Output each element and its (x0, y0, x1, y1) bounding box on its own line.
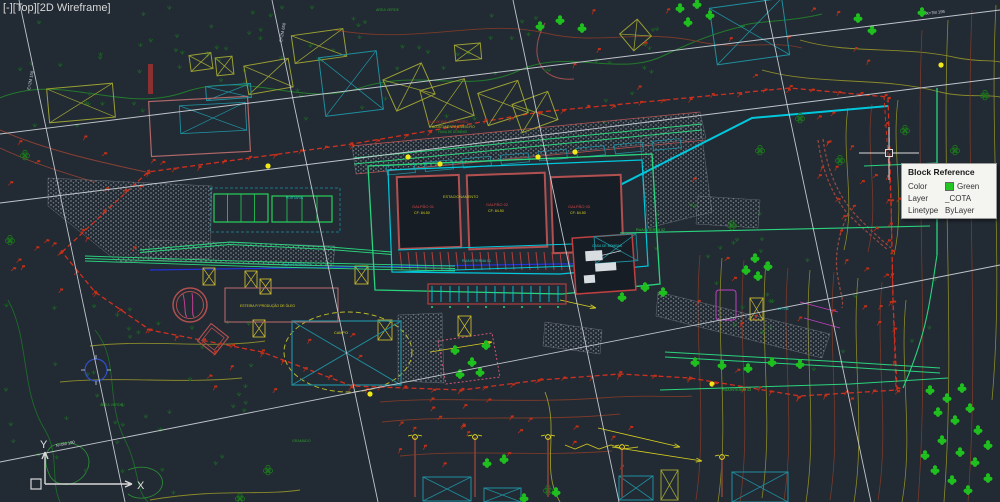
plant-sprig-icon (357, 35, 361, 39)
plant-sprig-icon (138, 69, 142, 73)
contour-line (95, 330, 148, 502)
survey-marker (768, 390, 773, 395)
structure-xbox-yellow (245, 271, 257, 288)
plant-sprig-icon (88, 91, 92, 95)
tree-outline-icon (264, 465, 273, 475)
survey-marker (574, 425, 579, 430)
plant-sprig-icon (741, 305, 745, 309)
light-dot (572, 149, 577, 154)
building-xbox-olive (189, 53, 213, 72)
tree-icon (744, 363, 753, 373)
plant-sprig-icon (296, 88, 300, 92)
contour-line (800, 40, 1000, 62)
plant-sprig-icon (356, 23, 360, 27)
plant-sprig-icon (714, 281, 718, 285)
drawing-label: RUA INTERNA 03 (722, 388, 751, 392)
survey-marker (728, 37, 733, 42)
tree-icon (964, 485, 973, 495)
plant-sprig-icon (760, 237, 764, 241)
survey-marker (849, 145, 854, 150)
equipment-block (584, 275, 596, 284)
plant-sprig-icon (132, 101, 136, 105)
tree-icon (948, 475, 957, 485)
tank-detail (183, 293, 194, 317)
survey-marker (349, 386, 354, 391)
survey-marker (831, 112, 836, 117)
grid-coordinate-label: E=2M 650 (278, 22, 287, 42)
tree-icon (868, 25, 877, 35)
ucs-x-label: X (137, 480, 145, 492)
plant-sprig-icon (520, 19, 524, 23)
plant-sprig-icon (53, 362, 57, 366)
plant-sprig-icon (58, 63, 62, 67)
plant-sprig-icon (209, 24, 213, 28)
building-xbox-teal (732, 472, 788, 502)
plant-sprig-icon (215, 45, 219, 49)
plant-sprig-icon (426, 50, 430, 54)
tree-icon (934, 407, 943, 417)
drawing-label: ESTACIONAMENTO (443, 195, 478, 199)
survey-marker (817, 115, 822, 120)
survey-marker (591, 9, 596, 14)
tank-outer (173, 288, 207, 322)
treatment-plant (572, 234, 640, 294)
tree-icon (943, 393, 952, 403)
tooltip-row-color: Color Green (908, 180, 991, 192)
tooltip-title: Block Reference (908, 167, 991, 177)
pipe-curve (903, 255, 937, 388)
tree-icon (984, 440, 993, 450)
plant-sprig-icon (75, 123, 79, 127)
plant-sprig-icon (841, 349, 845, 353)
survey-marker (572, 63, 577, 68)
plant-sprig-icon (98, 55, 102, 59)
survey-marker (886, 239, 891, 244)
survey-marker (20, 265, 25, 270)
plant-sprig-icon (115, 440, 119, 444)
survey-marker (725, 257, 730, 262)
survey-marker (172, 168, 177, 173)
tree-icon (958, 383, 967, 393)
plant-sprig-icon (310, 5, 314, 9)
plant-sprig-icon (400, 44, 404, 48)
survey-marker (18, 140, 23, 145)
plant-sprig-icon (510, 36, 514, 40)
plant-sprig-icon (115, 313, 119, 317)
plant-sprig-icon (765, 292, 769, 296)
contour-line (830, 272, 835, 500)
column-line (512, 252, 514, 270)
column-line (496, 252, 498, 270)
tree-icon (676, 3, 685, 13)
survey-marker (786, 88, 791, 93)
survey-marker (377, 386, 382, 391)
plant-sprig-icon (648, 46, 652, 50)
pole-arm (468, 435, 482, 436)
survey-marker (561, 109, 566, 114)
plant-sprig-icon (360, 105, 364, 109)
survey-marker (628, 426, 633, 431)
drawing-label: E.T.E. (596, 267, 605, 271)
contour-line (902, 300, 907, 502)
survey-marker (638, 101, 643, 106)
tree-icon (483, 458, 492, 468)
survey-marker (811, 7, 816, 12)
survey-marker (280, 360, 285, 365)
survey-marker (260, 352, 265, 357)
plant-sprig-icon (259, 28, 263, 32)
site-plan-drawing: X=7M 195N=0M 190E=2M 150E=2M 650 ESTACIO… (0, 0, 1000, 502)
existing-shed-inner (179, 102, 246, 133)
plant-sprig-icon (18, 67, 22, 71)
stipple-area (696, 196, 760, 228)
column-line (440, 252, 442, 270)
plant-sprig-icon (4, 303, 8, 307)
viewport-controls: [-][Top][2D Wireframe] (3, 2, 111, 14)
plant-sprig-icon (171, 490, 175, 494)
survey-marker (213, 385, 218, 390)
survey-marker (229, 365, 234, 370)
viewport-control-minimize[interactable]: [-] (3, 2, 13, 14)
autocad-viewport[interactable]: X=7M 195N=0M 190E=2M 150E=2M 650 ESTACIO… (0, 0, 1000, 502)
tree-icon (718, 360, 727, 370)
building-xbox-olive (454, 43, 481, 61)
plant-sprig-icon (759, 249, 763, 253)
plant-sprig-icon (442, 66, 446, 70)
plant-sprig-icon (128, 307, 132, 311)
plant-sprig-icon (651, 28, 655, 32)
ucs-origin-box (31, 479, 41, 489)
light-dot (437, 161, 442, 166)
survey-marker (834, 165, 839, 170)
plant-sprig-icon (490, 13, 494, 17)
survey-marker (59, 288, 64, 293)
plant-sprig-icon (136, 330, 140, 334)
plant-sprig-icon (4, 387, 8, 391)
plant-sprig-icon (244, 400, 248, 404)
contour-line (762, 262, 767, 498)
tree-icon (754, 271, 763, 281)
drawing-label: ÁREA VERDE (376, 8, 400, 12)
plant-sprig-icon (643, 65, 647, 69)
drawing-label: GALPÃO 03 (568, 204, 591, 209)
plant-sprig-icon (175, 34, 179, 38)
drawing-label: RUA INTERNA 01 (282, 263, 311, 267)
column-line (560, 252, 562, 270)
light-dot (709, 381, 714, 386)
boundary-inner-line (884, 96, 896, 390)
drawing-label: RUA INTERNA 01 (462, 259, 491, 263)
pipe-dot (503, 306, 505, 308)
pipe-dot (485, 306, 487, 308)
plant-sprig-icon (718, 246, 722, 250)
survey-marker (735, 368, 740, 373)
viewport-control-view[interactable]: [Top] (13, 2, 37, 14)
plant-sprig-icon (99, 52, 103, 56)
tree-icon (951, 415, 960, 425)
existing-shed-outline (149, 96, 251, 156)
survey-marker (864, 267, 869, 272)
drawing-label: ACOSTAMENTO E MEIO-FIO (432, 125, 475, 129)
building-xbox-teal (423, 477, 471, 501)
plant-sprig-icon (655, 27, 659, 31)
plant-sprig-icon (144, 414, 148, 418)
plant-sprig-icon (92, 304, 96, 308)
plant-sprig-icon (37, 20, 41, 24)
tree-icon (706, 10, 715, 20)
pipe-dot (539, 306, 541, 308)
drawing-label: CASA DE BOMBAS (592, 244, 623, 248)
tree-icon (693, 0, 702, 9)
survey-marker (463, 404, 468, 409)
survey-marker (85, 237, 90, 242)
tree-icon (468, 357, 477, 367)
contour-line (968, 10, 973, 502)
survey-marker (839, 229, 844, 234)
drawing-label: CF: 84.50 (414, 211, 430, 215)
survey-marker (350, 333, 355, 338)
plant-sprig-icon (352, 16, 356, 20)
survey-marker (197, 166, 202, 171)
tree-icon (684, 17, 693, 27)
plant-sprig-icon (445, 114, 449, 118)
plant-sprig-icon (489, 36, 493, 40)
tree-icon (578, 23, 587, 33)
plant-sprig-icon (534, 16, 538, 20)
pipe-pair (665, 352, 940, 373)
survey-marker (866, 59, 871, 64)
plant-sprig-icon (812, 367, 816, 371)
survey-marker (753, 73, 759, 79)
tree-icon (796, 359, 805, 369)
contour-line (60, 378, 242, 382)
survey-marker (83, 135, 88, 140)
plant-sprig-icon (927, 325, 931, 329)
pipe-dot (521, 306, 523, 308)
survey-marker (596, 48, 601, 53)
contour-line (380, 396, 692, 402)
column-line (456, 252, 458, 270)
plant-sprig-icon (113, 420, 117, 424)
tree-icon (974, 425, 983, 435)
fence-zigzag (565, 444, 638, 449)
contour-line (740, 260, 745, 502)
survey-marker (117, 308, 122, 313)
contour-line (868, 104, 873, 252)
contour-line (537, 23, 574, 79)
plant-sprig-icon (731, 241, 735, 245)
magenta-detail (800, 302, 840, 328)
contour-line (0, 26, 745, 100)
tree-icon (971, 457, 980, 467)
plant-sprig-icon (231, 404, 235, 408)
tree-icon (764, 261, 773, 271)
contour-line (854, 278, 859, 502)
drawing-label: CF: 84.50 (488, 209, 504, 213)
tree-outline-icon (836, 155, 845, 165)
survey-marker (688, 98, 693, 103)
rollover-tooltip: Block Reference Color Green Layer _COTA … (901, 163, 997, 219)
survey-marker (820, 166, 825, 171)
survey-marker (399, 422, 404, 427)
survey-marker (637, 85, 642, 90)
contour-line (400, 451, 612, 456)
pipe-dot (467, 306, 469, 308)
viewport-control-visual-style[interactable]: [2D Wireframe] (37, 2, 111, 14)
survey-marker (732, 276, 737, 281)
plant-sprig-icon (174, 48, 178, 52)
pipe-dot (557, 306, 559, 308)
survey-marker (483, 386, 488, 391)
ucs-y-label: Y (40, 439, 48, 451)
survey-marker (536, 379, 541, 384)
drawing-label: GALPÃO 02 (486, 202, 509, 207)
plant-sprig-icon (33, 123, 37, 127)
building-xbox-teal (619, 476, 653, 500)
survey-marker (11, 267, 16, 272)
survey-circle (85, 359, 107, 381)
survey-marker (438, 416, 443, 421)
basin-diamond (198, 324, 229, 355)
survey-marker (854, 47, 859, 52)
contour-line (128, 467, 163, 498)
column-line (448, 252, 450, 270)
plant-sprig-icon (95, 393, 99, 397)
plant-sprig-icon (258, 36, 262, 40)
pipe-long (620, 226, 930, 233)
plant-sprig-icon (160, 467, 164, 471)
contour-line (844, 108, 849, 250)
pole-arm (615, 445, 629, 446)
tree-icon (552, 487, 561, 497)
survey-marker (886, 199, 891, 204)
green-color-swatch (945, 182, 954, 191)
plant-sprig-icon (100, 101, 104, 105)
tree-outline-icon (756, 145, 765, 155)
drawing-label: ÁREA VERDE (100, 403, 124, 407)
tree-icon (956, 447, 965, 457)
tree-icon (751, 253, 760, 263)
survey-marker (397, 448, 403, 454)
light-dot (938, 62, 943, 67)
plant-sprig-icon (473, 116, 477, 120)
tree-icon (921, 450, 930, 460)
survey-marker (357, 355, 362, 360)
structure-xbox-yellow (203, 268, 215, 285)
light-dot (535, 154, 540, 159)
contour-line (894, 100, 899, 255)
leader-arrow (612, 447, 702, 461)
tree-icon (641, 282, 650, 292)
column-line (432, 252, 434, 270)
contour-line (696, 255, 701, 500)
garden-bed-outline (438, 333, 500, 384)
utility-poles-layer (408, 435, 729, 497)
plant-sprig-icon (141, 12, 145, 16)
tree-icon (476, 367, 485, 377)
ucs-x-axis (45, 481, 132, 487)
plant-sprig-icon (190, 325, 194, 329)
tooltip-row-linetype: Linetype ByLayer (908, 204, 991, 216)
drawing-label: ESTEIRA P/ PRODUÇÃO DE ÓLEO (240, 303, 295, 308)
building-xbox-olive (620, 19, 652, 51)
tooltip-row-layer: Layer _COTA (908, 192, 991, 204)
survey-marker (661, 99, 666, 104)
survey-marker (851, 205, 856, 210)
column-line (424, 252, 426, 270)
leader-arrow (598, 428, 680, 447)
plant-sprig-icon (910, 338, 914, 342)
contour-line (0, 148, 95, 182)
survey-marker (844, 259, 849, 264)
plant-sprig-icon (167, 5, 171, 9)
building-xbox-olive (383, 63, 435, 111)
drawing-label: RUA VICINAL SÃO PEDRO (428, 119, 468, 124)
drawing-label: CF: 84.50 (570, 211, 586, 215)
survey-marker (52, 242, 57, 247)
plant-sprig-icon (383, 96, 387, 100)
grid-line (765, 0, 871, 502)
plant-sprig-icon (9, 422, 13, 426)
tree-icon (536, 21, 545, 31)
survey-marker (873, 173, 878, 178)
plant-sprig-icon (237, 392, 241, 396)
plant-sprig-icon (52, 306, 56, 310)
drawing-label: RUA INTERNA 02 (636, 228, 665, 232)
tree-outline-icon (6, 235, 15, 245)
survey-marker (174, 336, 179, 341)
survey-marker (431, 406, 436, 411)
structure-xbox-yellow (458, 316, 471, 336)
survey-marker (617, 375, 622, 380)
tree-icon (854, 13, 863, 23)
survey-marker (307, 339, 312, 344)
survey-marker (44, 239, 50, 245)
survey-marker (572, 441, 577, 446)
plant-sprig-icon (168, 410, 172, 414)
survey-marker (860, 180, 865, 185)
tree-outline-icon (901, 125, 910, 135)
tank-inner (177, 292, 204, 319)
pipe-dot (449, 306, 451, 308)
pole-arm (408, 435, 422, 436)
plant-sprig-icon (149, 38, 153, 42)
survey-marker (817, 174, 822, 179)
plant-sprig-icon (280, 5, 284, 9)
contour-line (740, 14, 822, 26)
plant-sprig-icon (417, 45, 421, 49)
plant-sprig-icon (526, 32, 530, 36)
annex-boundary (210, 188, 340, 232)
survey-marker (273, 388, 278, 393)
contour-line (944, 20, 949, 502)
survey-marker (299, 149, 304, 154)
survey-marker (823, 394, 828, 399)
survey-marker (884, 273, 890, 279)
building-xbox-olive (47, 83, 116, 123)
plant-sprig-icon (395, 66, 399, 70)
contour-line (150, 490, 300, 500)
survey-marker (442, 462, 447, 467)
plant-sprig-icon (249, 363, 253, 367)
survey-marker (798, 316, 803, 321)
contour-line (784, 268, 789, 500)
tree-icon (931, 465, 940, 475)
plant-sprig-icon (247, 31, 251, 35)
survey-marker (151, 159, 156, 164)
plant-sprig-icon (128, 334, 132, 338)
plant-sprig-icon (11, 439, 15, 443)
